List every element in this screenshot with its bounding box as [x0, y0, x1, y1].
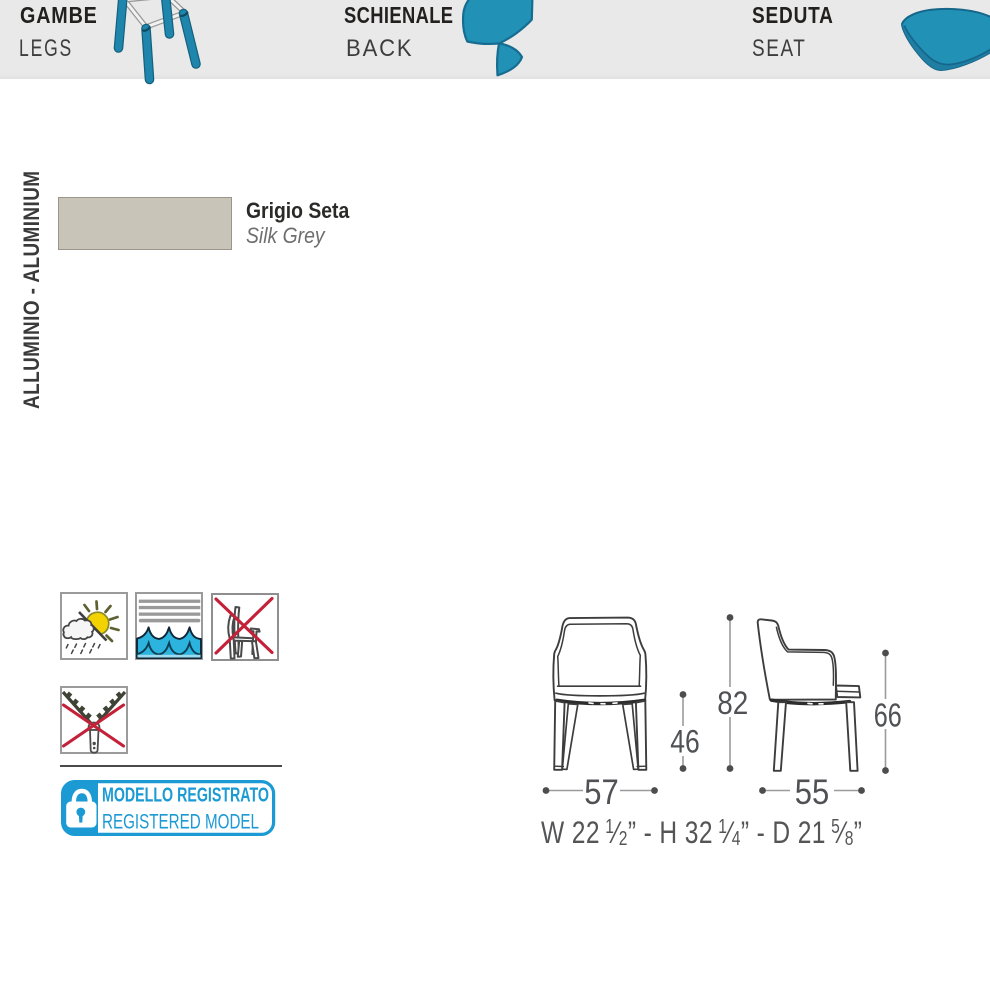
svg-text:57: 57 [584, 773, 619, 812]
svg-text:66: 66 [874, 697, 902, 734]
svg-text:46: 46 [670, 723, 700, 759]
svg-text:MODELLO REGISTRATO: MODELLO REGISTRATO [102, 784, 269, 807]
svg-text:82: 82 [717, 685, 748, 721]
svg-text:55: 55 [795, 773, 830, 812]
svg-text:REGISTERED MODEL: REGISTERED MODEL [102, 811, 259, 834]
